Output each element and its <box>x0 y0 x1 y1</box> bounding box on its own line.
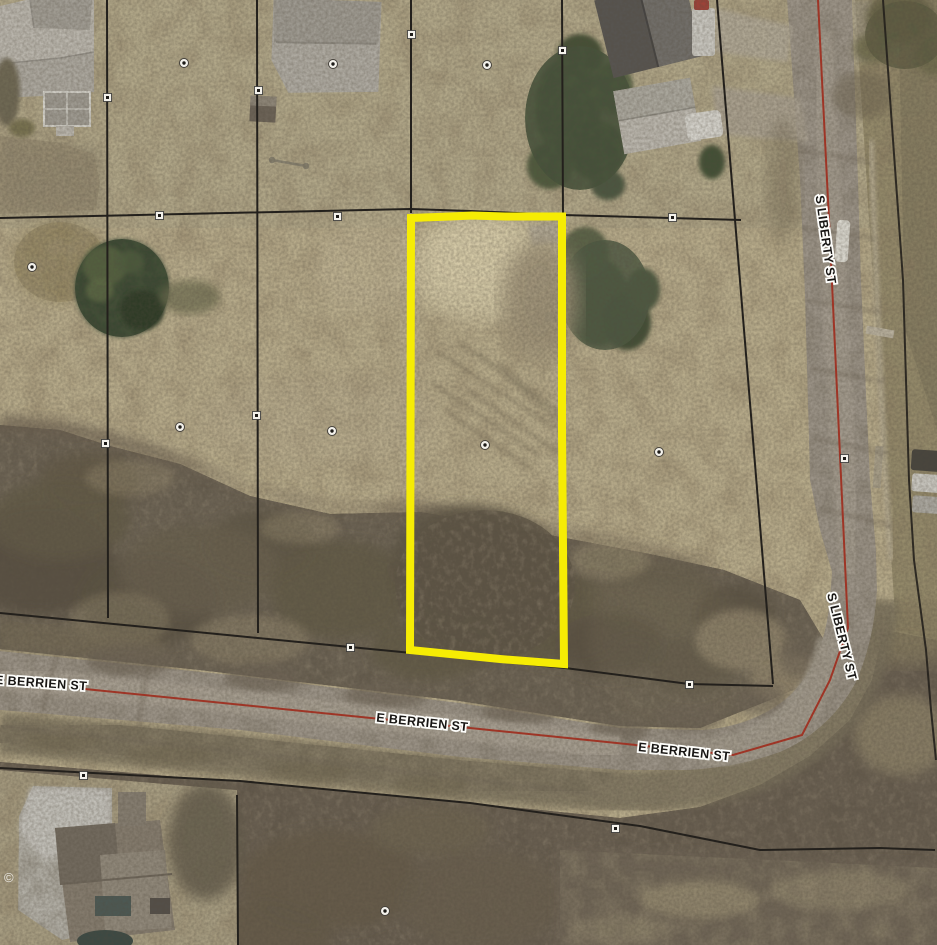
svg-text:©: © <box>4 870 14 885</box>
